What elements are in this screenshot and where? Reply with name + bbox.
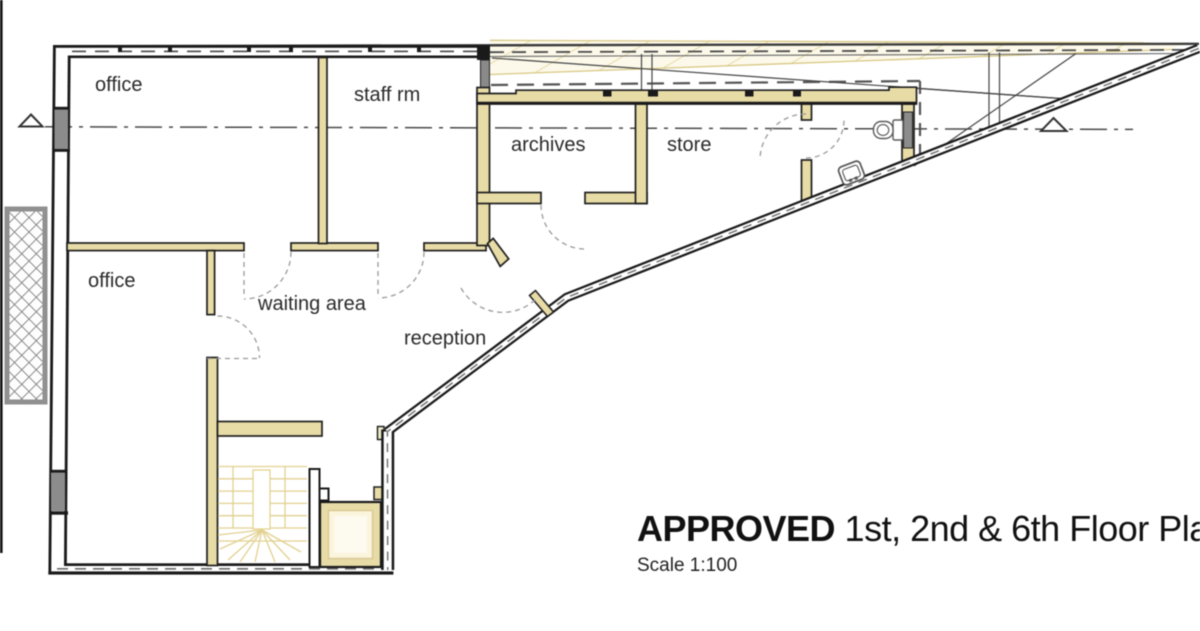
svg-text:staff rm: staff rm bbox=[354, 84, 420, 106]
svg-text:store: store bbox=[667, 134, 711, 156]
svg-text:reception: reception bbox=[404, 328, 486, 350]
svg-text:office: office bbox=[95, 74, 142, 96]
svg-text:APPROVED 1st, 2nd & 6th Floor: APPROVED 1st, 2nd & 6th Floor Plans bbox=[637, 508, 1200, 549]
svg-text:office: office bbox=[88, 270, 135, 292]
svg-text:archives: archives bbox=[511, 134, 585, 156]
svg-text:Scale 1:100: Scale 1:100 bbox=[637, 555, 737, 576]
svg-text:waiting area: waiting area bbox=[257, 293, 367, 315]
